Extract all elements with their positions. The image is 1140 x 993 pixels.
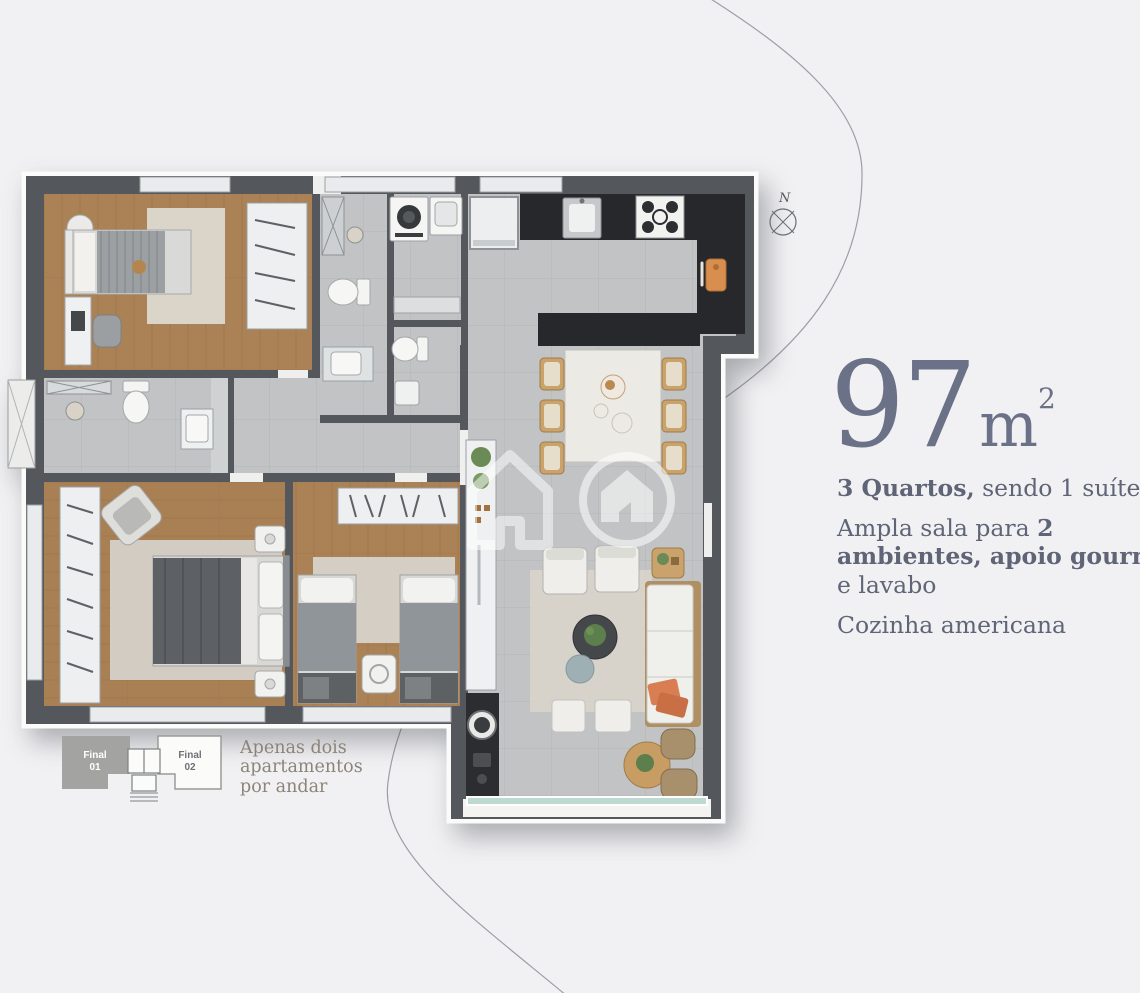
pouf bbox=[595, 700, 631, 732]
feature-list: 3 Quartos, sendo 1 suíte Ampla sala para… bbox=[837, 474, 1140, 639]
single-bed bbox=[298, 575, 356, 703]
cabinet bbox=[394, 297, 460, 313]
final01-label-2: 01 bbox=[89, 762, 101, 773]
side-table bbox=[566, 655, 594, 683]
keyplan: Final 01 Final 02 bbox=[55, 727, 235, 811]
final02-label-1: Final bbox=[178, 750, 202, 761]
coffee-table bbox=[573, 615, 617, 659]
nightstand bbox=[255, 526, 285, 552]
pouf bbox=[552, 700, 585, 732]
nightstand bbox=[255, 671, 285, 697]
balcony-railing bbox=[463, 797, 711, 817]
toilet bbox=[123, 381, 149, 423]
feature-kitchen: Cozinha americana bbox=[837, 611, 1140, 640]
dining-table bbox=[565, 350, 661, 462]
final01-label-1: Final bbox=[83, 750, 107, 761]
area-value: 97 bbox=[830, 336, 974, 474]
final02-label-2: 02 bbox=[184, 762, 196, 773]
speckled-counter bbox=[211, 378, 228, 473]
fridge bbox=[470, 197, 518, 249]
side-table bbox=[652, 548, 684, 578]
keyplan-core bbox=[128, 749, 160, 801]
shower-head bbox=[66, 402, 84, 420]
wardrobe bbox=[60, 487, 100, 703]
double-bed bbox=[153, 556, 289, 666]
cutting-board bbox=[702, 259, 726, 291]
nightstand bbox=[362, 655, 396, 693]
single-bed bbox=[65, 230, 191, 294]
feature-bedrooms: 3 Quartos, sendo 1 suíte bbox=[837, 474, 1140, 503]
area-unit: m bbox=[979, 388, 1038, 461]
wardrobe bbox=[338, 488, 458, 524]
bathroom-vanity bbox=[323, 347, 373, 381]
kitchen-island bbox=[538, 313, 700, 346]
cooktop bbox=[636, 196, 684, 238]
service-shaft bbox=[8, 380, 35, 468]
shower-head bbox=[347, 227, 363, 243]
kitchen-sink bbox=[563, 198, 601, 238]
armchair bbox=[543, 548, 587, 594]
wardrobe bbox=[247, 203, 307, 329]
area-exponent: 2 bbox=[1038, 382, 1056, 415]
sofa bbox=[645, 581, 701, 727]
laundry-tank bbox=[430, 197, 462, 235]
keyplan-caption: Apenas dois apartamentos por andar bbox=[240, 739, 380, 797]
washing-machine bbox=[390, 197, 428, 241]
feature-living: Ampla sala para 2 ambientes, apoio gourm… bbox=[837, 514, 1140, 600]
lavabo-toilet bbox=[392, 337, 428, 361]
armchair bbox=[595, 546, 639, 592]
bathroom-vanity bbox=[181, 409, 213, 449]
single-bed bbox=[400, 575, 458, 703]
compass-north-label: N bbox=[778, 191, 791, 206]
toilet bbox=[328, 279, 370, 305]
compass-icon: N bbox=[757, 186, 813, 244]
lavabo-sink bbox=[395, 381, 419, 405]
gourmet-counter bbox=[466, 693, 499, 800]
area-headline: 97 m2 bbox=[830, 346, 1056, 464]
